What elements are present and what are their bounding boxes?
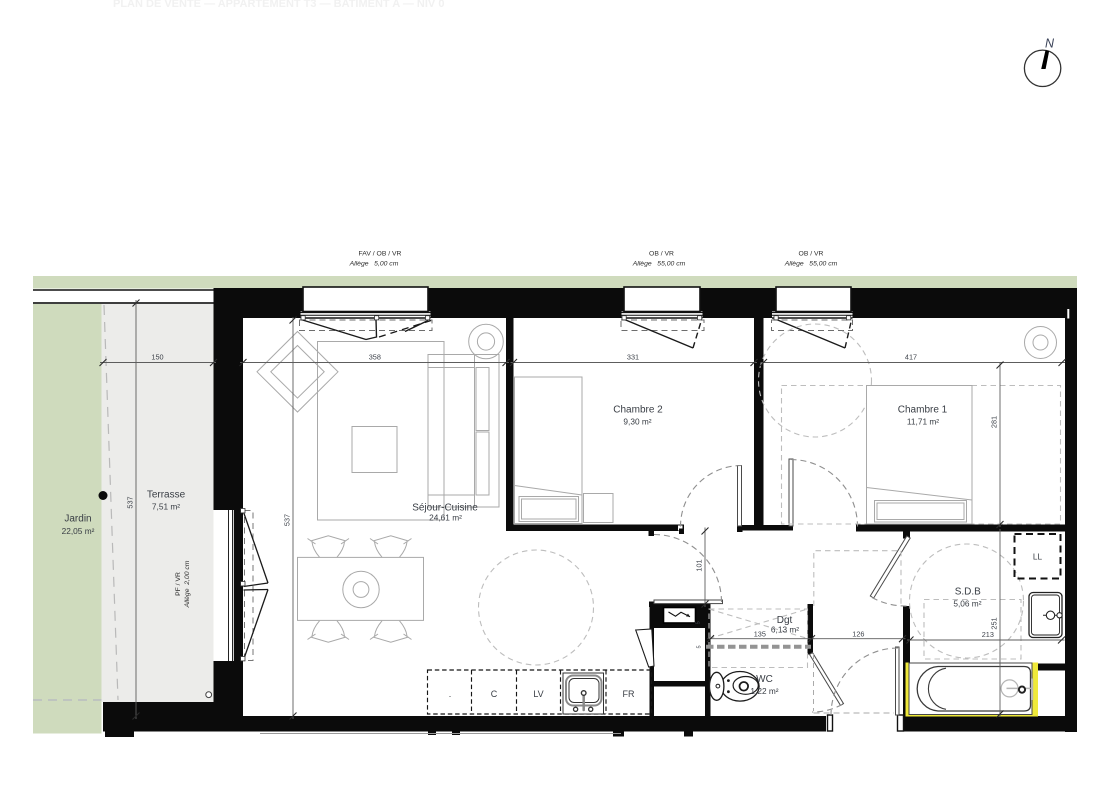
svg-text:Allège 55,00 cm: Allège 55,00 cm [632, 261, 686, 268]
svg-text:135: 135 [754, 630, 766, 639]
svg-text:331: 331 [627, 353, 639, 362]
svg-text:1,22 m²: 1,22 m² [750, 686, 778, 696]
svg-text:Chambre 2: Chambre 2 [613, 405, 663, 416]
svg-text:WC: WC [756, 674, 773, 685]
svg-text:11,71 m²: 11,71 m² [907, 417, 939, 427]
svg-text:126: 126 [852, 630, 864, 639]
svg-text:7,51 m²: 7,51 m² [152, 502, 180, 512]
svg-text:358: 358 [369, 353, 381, 362]
svg-text:OB / VR: OB / VR [799, 251, 824, 258]
svg-text:150: 150 [151, 353, 163, 362]
svg-text:213: 213 [982, 630, 994, 639]
svg-text:5: 5 [697, 645, 703, 648]
svg-text:PLAN DE VENTE — APPARTEMENT T3: PLAN DE VENTE — APPARTEMENT T3 — BATIMEN… [113, 0, 444, 10]
svg-text:S.D.B: S.D.B [955, 587, 981, 598]
svg-text:Jardin: Jardin [64, 514, 91, 525]
svg-text:9,30 m²: 9,30 m² [623, 417, 651, 427]
svg-text:C: C [491, 689, 498, 699]
svg-text:5: 5 [696, 621, 702, 624]
svg-text:FR: FR [623, 689, 635, 699]
svg-text:Allège 2,00 cm: Allège 2,00 cm [184, 560, 191, 608]
svg-text:281: 281 [990, 416, 999, 428]
svg-text:N: N [1045, 37, 1055, 51]
svg-text:LL: LL [1033, 552, 1043, 562]
svg-text:251: 251 [990, 617, 999, 629]
svg-text:537: 537 [126, 496, 135, 508]
svg-text:5,06 m²: 5,06 m² [953, 599, 981, 609]
svg-text:PF / VR: PF / VR [175, 572, 182, 596]
svg-text:417: 417 [905, 353, 917, 362]
svg-text:537: 537 [283, 514, 292, 526]
svg-text:OB / VR: OB / VR [649, 251, 674, 258]
svg-text:.: . [449, 689, 452, 699]
svg-text:Chambre 1: Chambre 1 [898, 405, 948, 416]
svg-text:6,13 m²: 6,13 m² [771, 625, 799, 635]
svg-text:LV: LV [533, 689, 543, 699]
svg-text:101: 101 [695, 559, 704, 571]
svg-text:24,61 m²: 24,61 m² [429, 513, 462, 523]
svg-text:Terrasse: Terrasse [147, 490, 186, 501]
svg-text:22,05 m²: 22,05 m² [62, 526, 95, 536]
svg-text:Allège 55,00 cm: Allège 55,00 cm [784, 261, 838, 268]
svg-text:FAV / OB / VR: FAV / OB / VR [359, 251, 402, 258]
svg-text:Allège 5,00 cm: Allège 5,00 cm [349, 261, 399, 268]
